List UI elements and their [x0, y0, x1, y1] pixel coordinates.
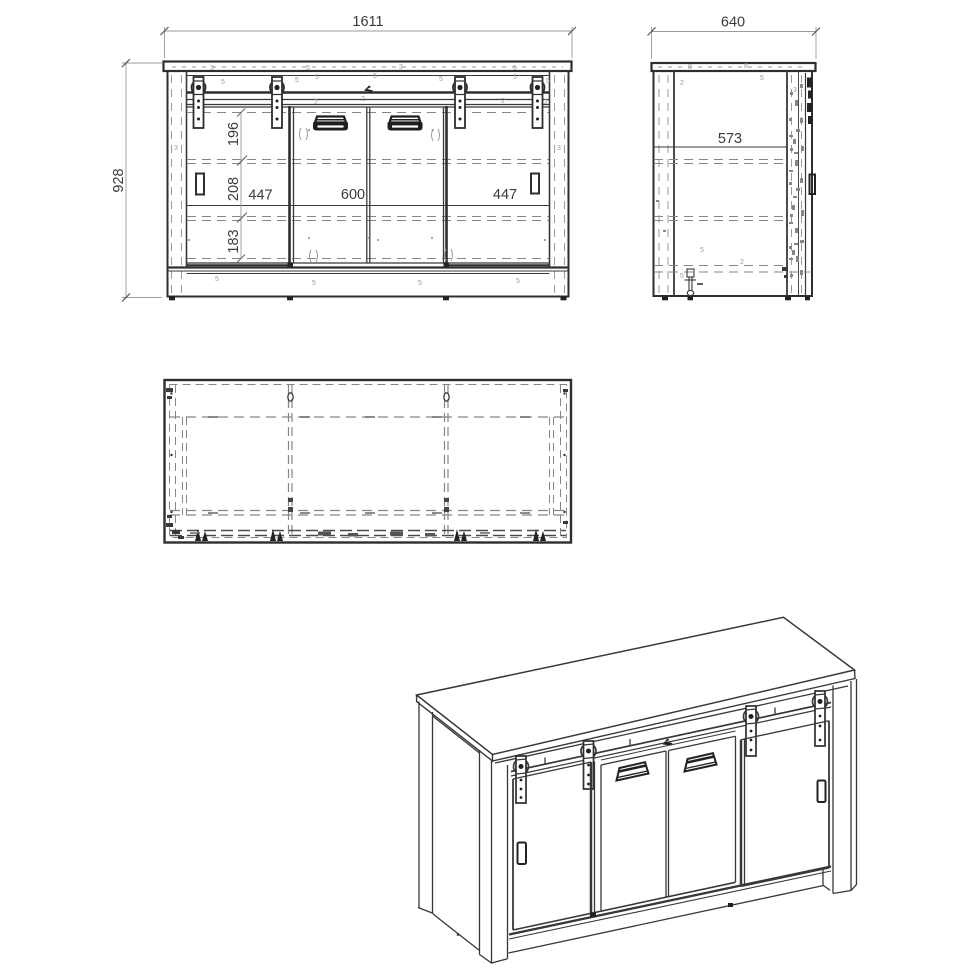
svg-text:5: 5 [418, 280, 422, 287]
svg-text:5: 5 [700, 247, 704, 254]
svg-text:447: 447 [493, 187, 517, 203]
svg-text:5: 5 [295, 77, 299, 84]
svg-text:5: 5 [315, 74, 319, 81]
svg-text:5: 5 [513, 65, 517, 72]
svg-text:8: 8 [688, 64, 692, 71]
svg-text:447: 447 [248, 188, 272, 204]
svg-text:2: 2 [680, 80, 684, 87]
svg-text:8: 8 [744, 63, 748, 70]
svg-text:208: 208 [226, 177, 242, 201]
svg-text:5: 5 [760, 75, 764, 82]
svg-text:196: 196 [226, 122, 242, 146]
svg-text:928: 928 [111, 168, 127, 192]
svg-text:5: 5 [546, 78, 550, 85]
svg-text:3: 3 [557, 145, 561, 152]
svg-text:5: 5 [516, 278, 520, 285]
svg-text:5: 5 [312, 280, 316, 287]
svg-text:600: 600 [341, 187, 365, 203]
svg-text:2: 2 [314, 99, 318, 106]
svg-text:2: 2 [501, 98, 505, 105]
svg-text:3: 3 [210, 65, 214, 72]
svg-text:5: 5 [680, 273, 684, 280]
svg-text:3: 3 [399, 64, 403, 71]
svg-text:5: 5 [373, 73, 377, 80]
svg-text:3: 3 [174, 145, 178, 152]
svg-text:183: 183 [226, 229, 242, 253]
svg-text:1611: 1611 [352, 14, 383, 30]
svg-text:2: 2 [361, 96, 365, 103]
svg-text:5: 5 [439, 76, 443, 83]
svg-text:5: 5 [306, 65, 310, 72]
svg-text:2: 2 [544, 99, 548, 106]
svg-text:640: 640 [721, 15, 745, 31]
svg-text:5: 5 [215, 276, 219, 283]
svg-text:5: 5 [221, 79, 225, 86]
svg-text:573: 573 [718, 131, 742, 147]
svg-text:3: 3 [793, 87, 797, 94]
svg-text:5: 5 [513, 74, 517, 81]
svg-text:2: 2 [740, 259, 744, 266]
